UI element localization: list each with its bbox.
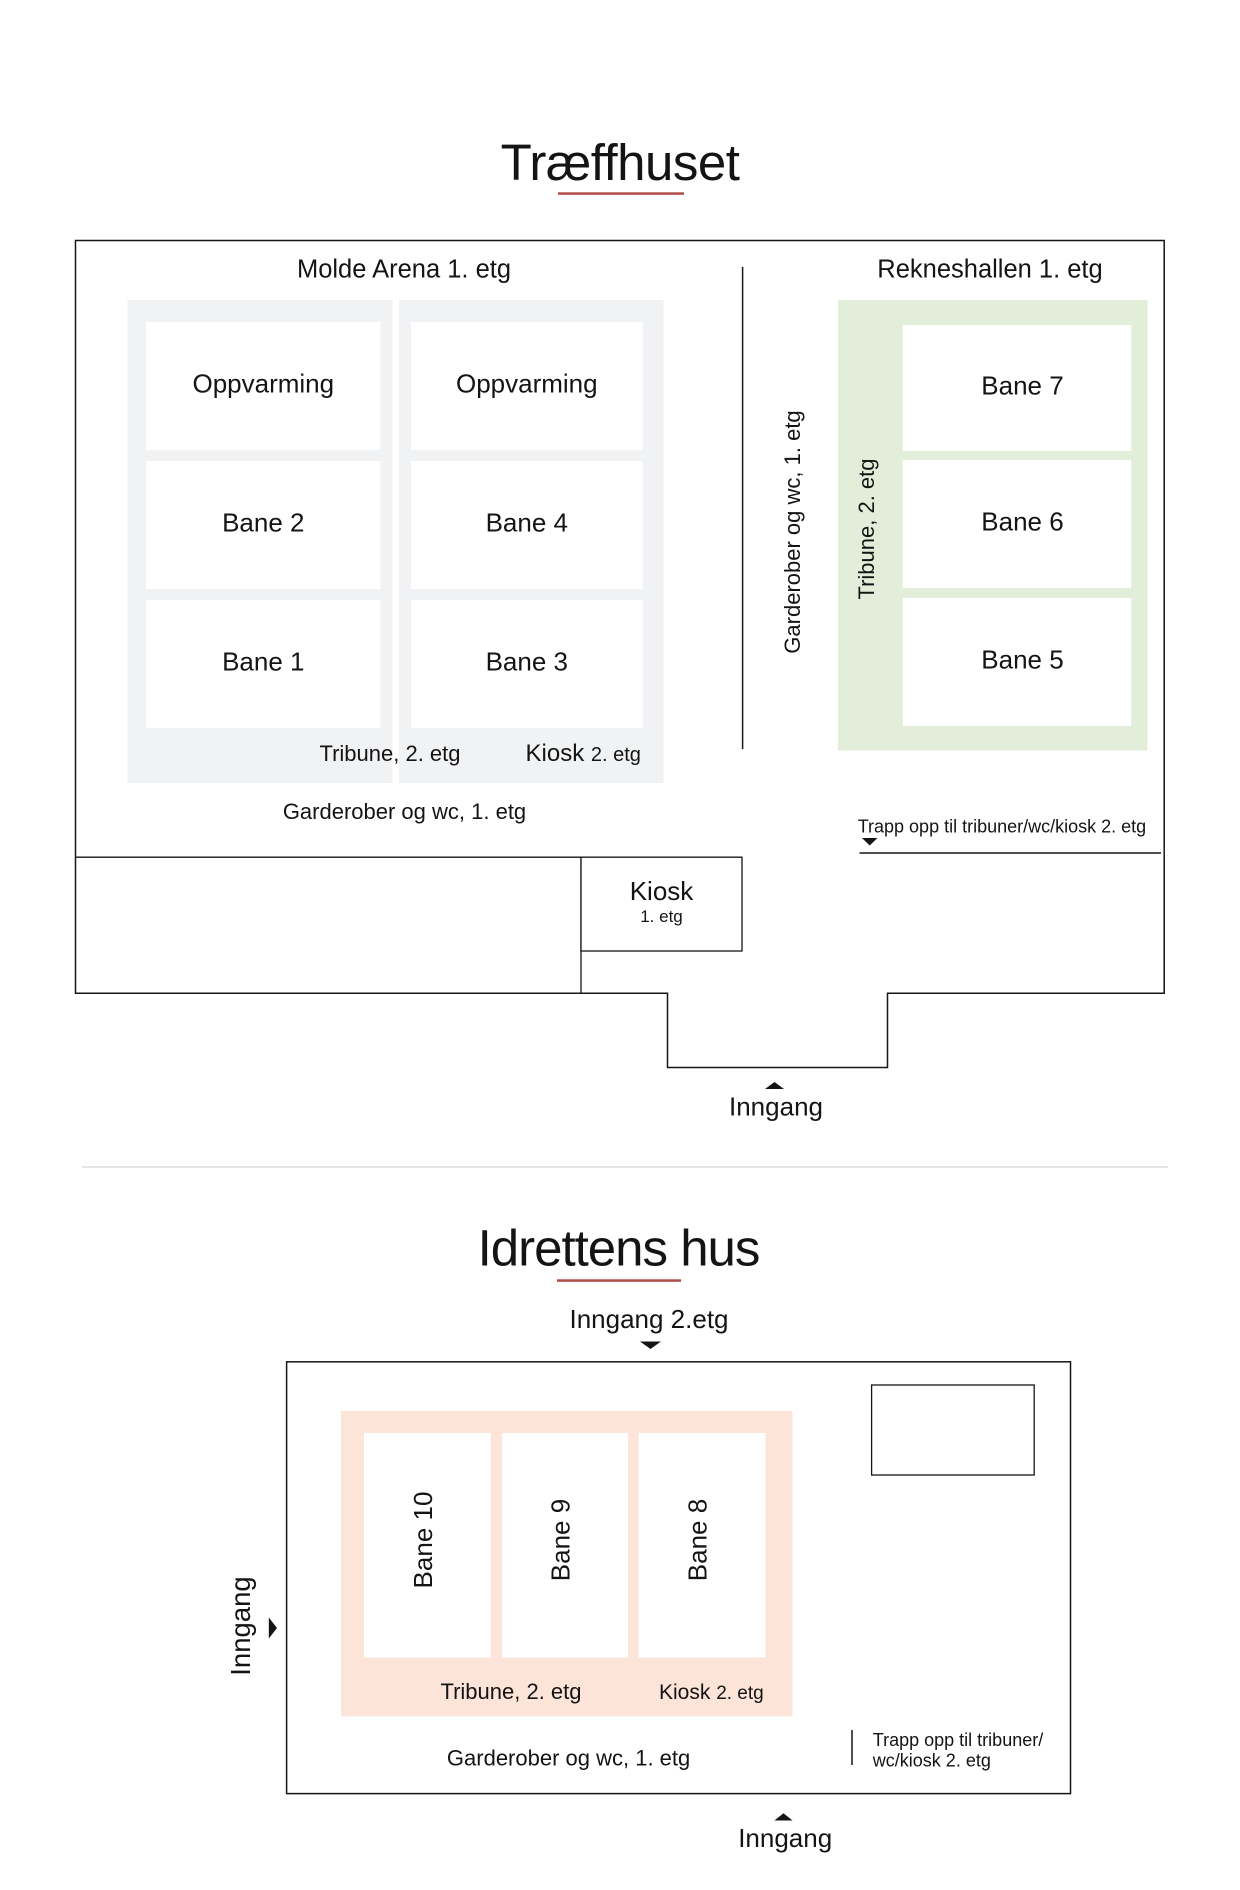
svg-text:wc/kiosk 2. etg: wc/kiosk 2. etg (872, 1751, 991, 1771)
svg-text:Garderober og wc, 1. etg: Garderober og wc, 1. etg (283, 799, 526, 824)
svg-text:Inngang 2.etg: Inngang 2.etg (569, 1304, 728, 1334)
svg-text:1. etg: 1. etg (640, 907, 683, 926)
svg-text:Oppvarming: Oppvarming (456, 369, 598, 399)
svg-text:Bane 4: Bane 4 (486, 508, 568, 538)
svg-text:Bane 5: Bane 5 (981, 645, 1063, 675)
svg-text:Bane 9: Bane 9 (546, 1499, 576, 1581)
svg-text:Bane 7: Bane 7 (981, 371, 1063, 401)
svg-text:Trapp opp til tribuner/: Trapp opp til tribuner/ (873, 1730, 1043, 1750)
svg-text:Bane 10: Bane 10 (408, 1492, 438, 1589)
svg-text:Bane 8: Bane 8 (683, 1499, 713, 1581)
svg-text:Bane 1: Bane 1 (222, 647, 304, 677)
svg-text:Bane 3: Bane 3 (486, 647, 568, 677)
svg-text:Garderober og wc, 1. etg: Garderober og wc, 1. etg (780, 410, 805, 653)
svg-text:Inngang: Inngang (738, 1823, 832, 1853)
svg-text:Inngang: Inngang (729, 1092, 823, 1122)
svg-text:Tribune, 2. etg: Tribune, 2. etg (319, 741, 460, 766)
svg-text:Tribune, 2. etg: Tribune, 2. etg (854, 458, 879, 599)
svg-text:Garderober og wc, 1. etg: Garderober og wc, 1. etg (447, 1746, 690, 1771)
svg-text:Molde Arena 1. etg: Molde Arena 1. etg (297, 256, 511, 284)
svg-text:Kiosk 2. etg: Kiosk 2. etg (526, 740, 641, 767)
svg-text:Træffhuset: Træffhuset (501, 134, 740, 191)
svg-text:Tribune, 2. etg: Tribune, 2. etg (440, 1679, 581, 1704)
svg-text:Bane 6: Bane 6 (981, 507, 1063, 537)
svg-text:Bane 2: Bane 2 (222, 508, 304, 538)
svg-text:Oppvarming: Oppvarming (192, 369, 334, 399)
svg-text:Rekneshallen 1. etg: Rekneshallen 1. etg (877, 256, 1102, 284)
svg-text:Kiosk: Kiosk (630, 876, 695, 906)
svg-text:Trapp opp til tribuner/wc/kios: Trapp opp til tribuner/wc/kiosk 2. etg (858, 817, 1146, 837)
svg-text:Idrettens hus: Idrettens hus (478, 1220, 760, 1277)
svg-text:Inngang: Inngang (225, 1576, 256, 1675)
svg-text:Kiosk 2. etg: Kiosk 2. etg (659, 1681, 764, 1704)
